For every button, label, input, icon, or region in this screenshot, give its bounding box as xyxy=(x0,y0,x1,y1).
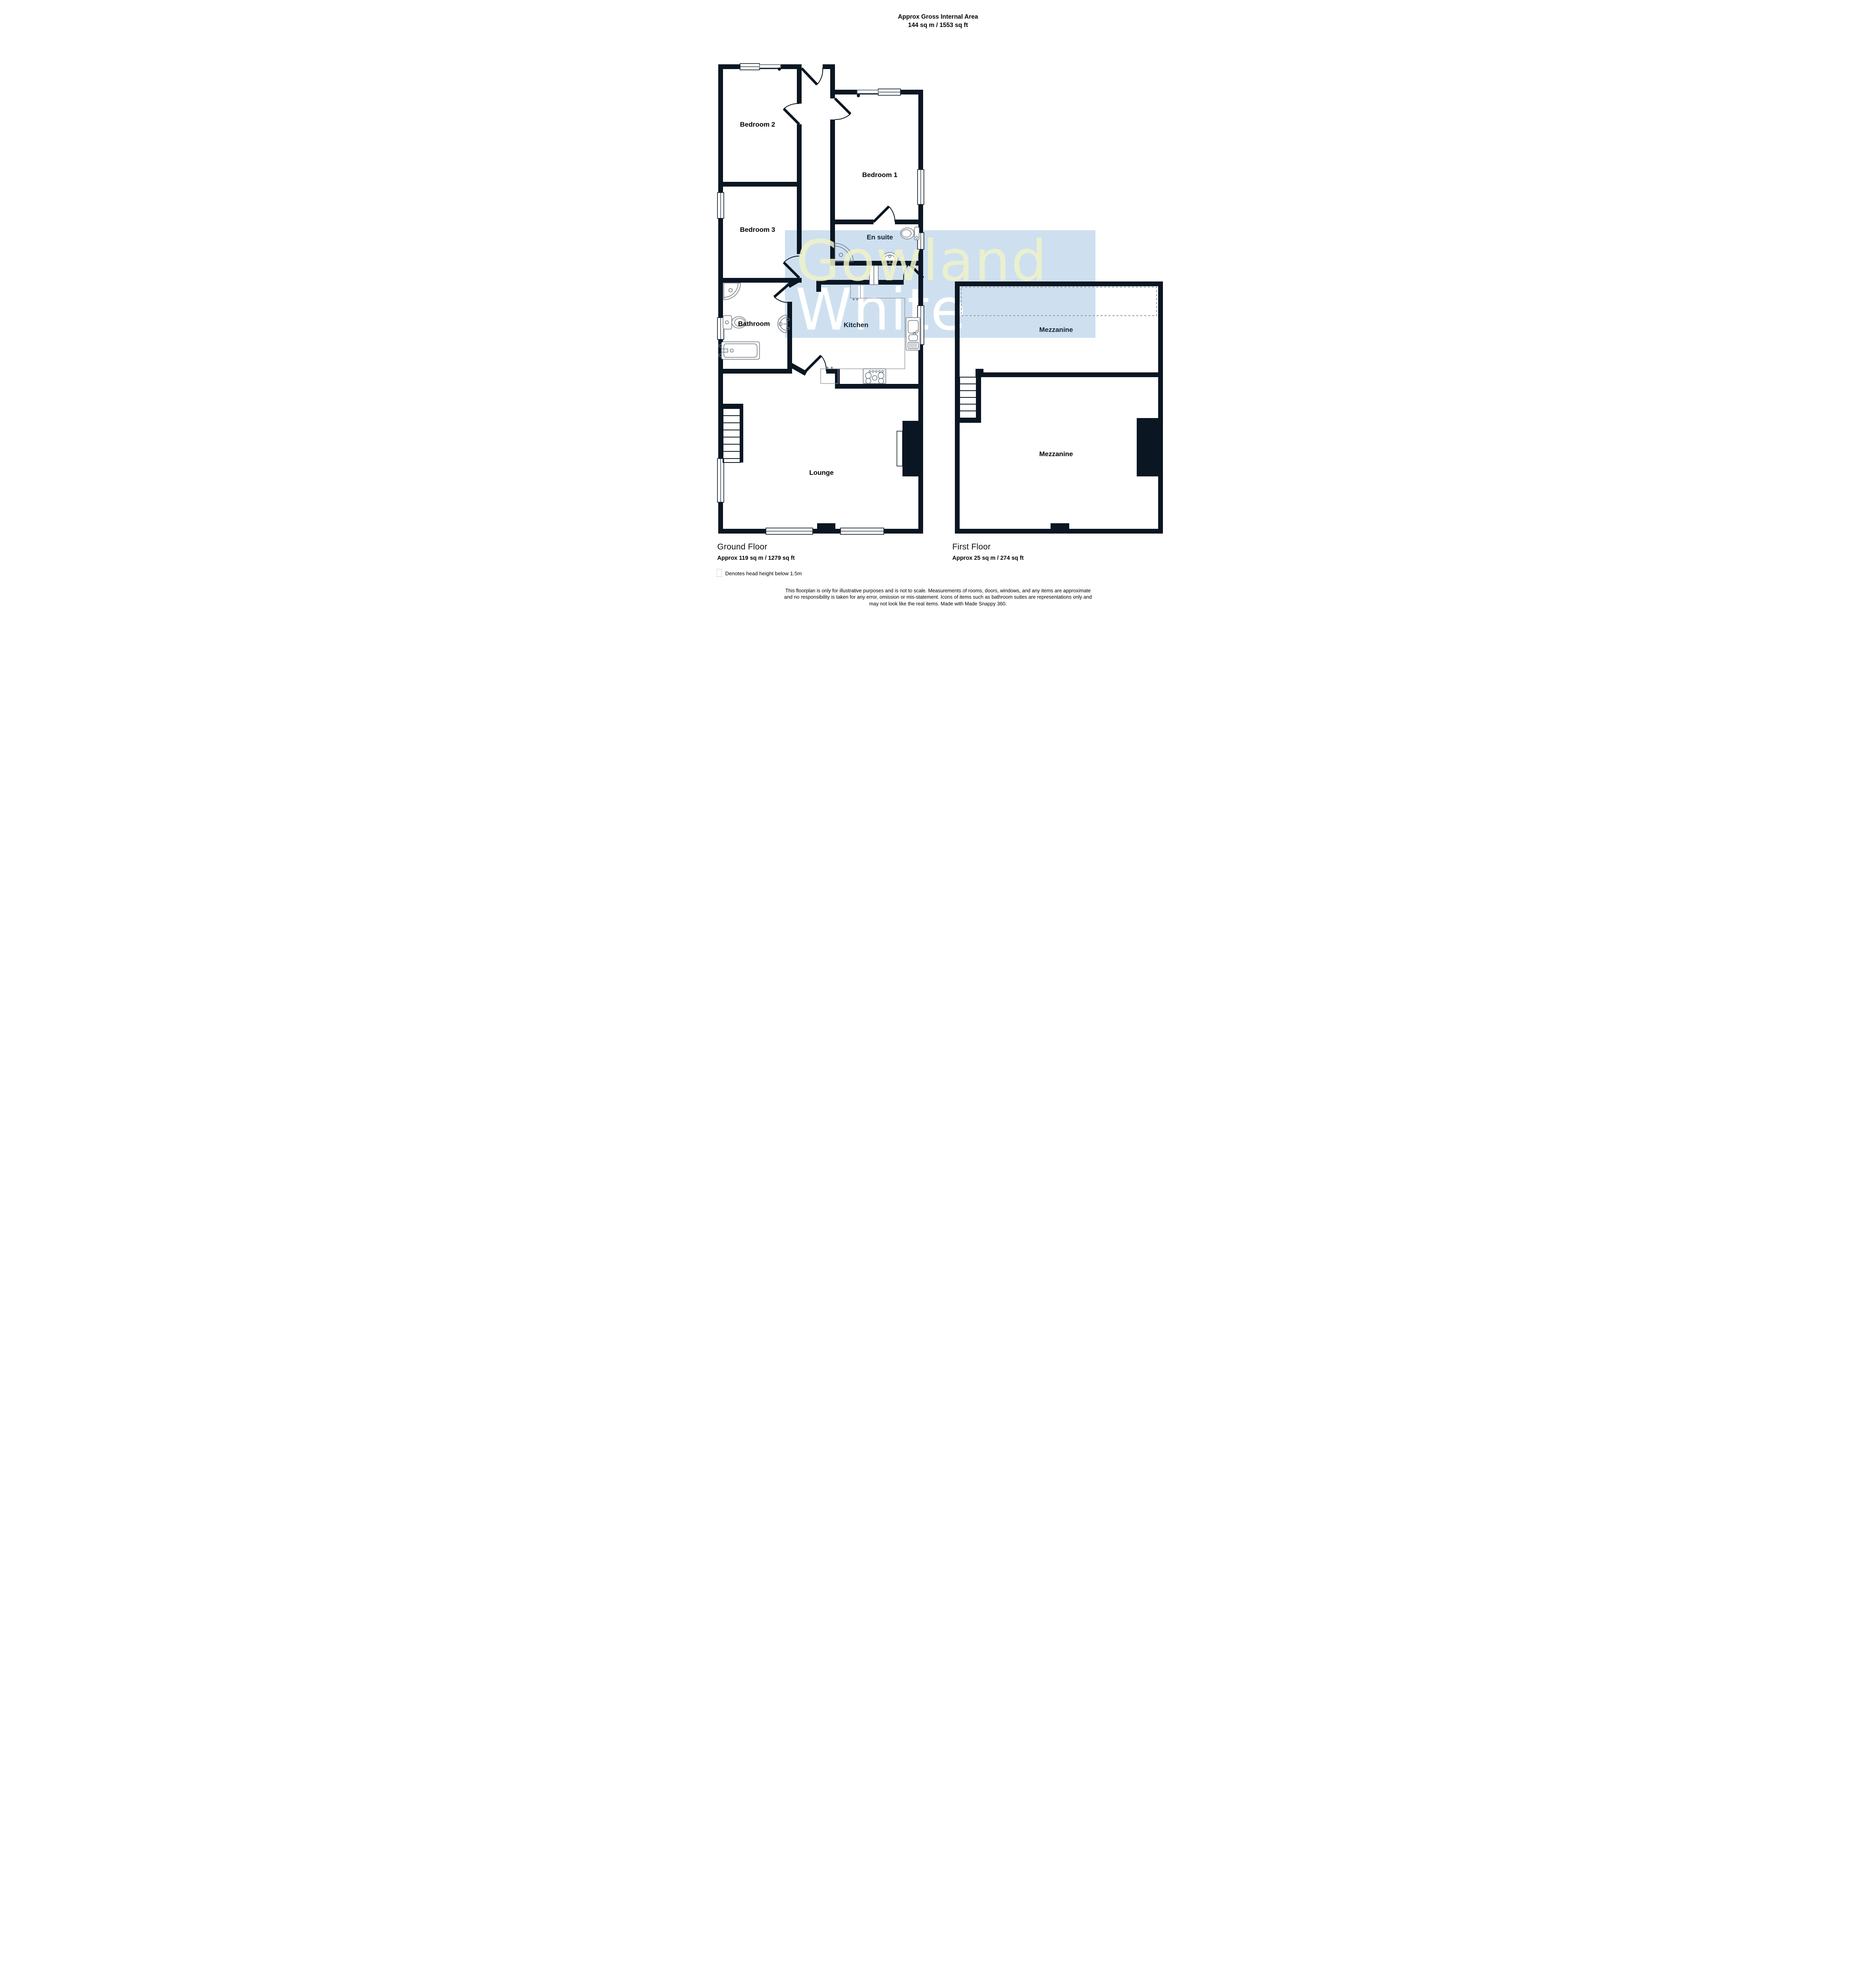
hob-icon xyxy=(863,369,886,384)
room-label-mezzanine-lower: Mezzanine xyxy=(1039,450,1073,458)
disclaimer-line1: This floorplan is only for illustrative … xyxy=(680,588,1196,594)
window xyxy=(878,89,900,95)
window xyxy=(841,528,884,534)
room-label-ensuite: En suite xyxy=(866,233,893,241)
room-label-bedroom2: Bedroom 2 xyxy=(740,121,775,128)
room-label-mezzanine-upper: Mezzanine xyxy=(1039,326,1073,333)
disclaimer-line2: and no responsibility is taken for any e… xyxy=(680,594,1196,600)
room-label-kitchen: Kitchen xyxy=(843,321,868,329)
room-label-lounge: Lounge xyxy=(809,469,833,476)
staircase-icon xyxy=(722,404,743,463)
ensuite-door xyxy=(873,206,895,222)
disclaimer: This floorplan is only for illustrative … xyxy=(680,588,1196,607)
lounge-features xyxy=(722,404,923,529)
bath-icon xyxy=(719,342,760,359)
room-label-bedroom3: Bedroom 3 xyxy=(740,226,775,233)
bedroom1-door xyxy=(835,98,850,119)
window xyxy=(717,193,724,218)
window xyxy=(766,528,813,534)
first-floor-name: First Floor xyxy=(952,542,991,552)
head-height-legend-text: Denotes head height below 1.5m xyxy=(725,570,802,576)
kitchen-sink-icon xyxy=(906,318,920,350)
shower-icon xyxy=(724,283,740,300)
disclaimer-line3: may not look like the real items. Made w… xyxy=(680,601,1196,607)
bedroom2-door xyxy=(784,104,799,124)
floorplan-drawing: White xyxy=(680,0,1196,617)
first-floor-area: Approx 25 sq m / 274 sq ft xyxy=(952,555,1024,561)
room-label-bathroom: Bathroom xyxy=(738,320,769,328)
fireplace xyxy=(897,421,923,476)
ground-floor-name: Ground Floor xyxy=(717,542,767,552)
room-label-bedroom1: Bedroom 1 xyxy=(862,171,897,179)
front-door xyxy=(802,68,823,85)
window xyxy=(918,170,924,204)
window xyxy=(740,64,760,70)
watermark-logo-text: Gowland xyxy=(796,228,1048,294)
ground-floor-area: Approx 119 sq m / 1279 sq ft xyxy=(717,555,795,561)
window-sill-shelf xyxy=(760,65,781,71)
chimney-breast xyxy=(817,523,835,529)
floorplan-page: Approx Gross Internal Area 144 sq m / 15… xyxy=(680,0,1196,617)
window xyxy=(717,459,724,502)
head-height-legend-icon xyxy=(717,569,722,577)
staircase-icon xyxy=(960,377,976,418)
